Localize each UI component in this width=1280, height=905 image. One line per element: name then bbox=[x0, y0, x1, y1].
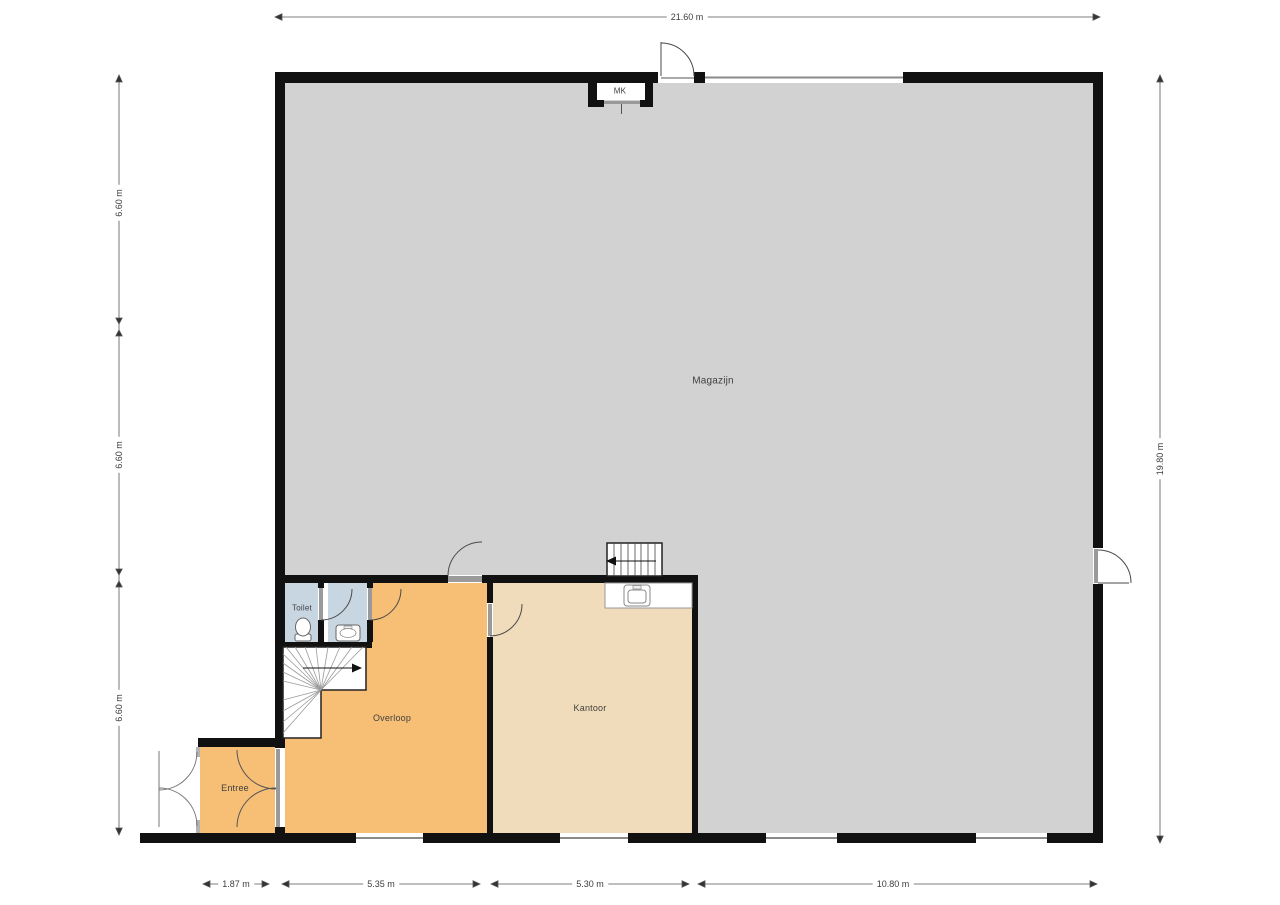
stairs-winder bbox=[283, 647, 366, 738]
dimension-label-left-3: 6.60 m bbox=[114, 690, 124, 726]
wash-basin-icon bbox=[336, 625, 360, 641]
dimension-label-bottom-3: 5.30 m bbox=[572, 879, 608, 889]
dimension-label-top: 21.60 m bbox=[667, 12, 708, 22]
dimension-label-left-1: 6.60 m bbox=[114, 185, 124, 221]
kitchenette-counter bbox=[605, 583, 692, 608]
room-label-entree: Entree bbox=[221, 783, 249, 793]
mk-hatch bbox=[604, 103, 640, 115]
floor-plan: MK Magazijn Toilet Overloop Kantoor Entr… bbox=[0, 0, 1280, 905]
room-label-overloop: Overloop bbox=[373, 713, 411, 723]
dimension-label-bottom-4: 10.80 m bbox=[873, 879, 914, 889]
room-label-magazijn: Magazijn bbox=[692, 376, 734, 387]
door-right-exterior bbox=[1098, 550, 1131, 583]
dimension-label-bottom-2: 5.35 m bbox=[363, 879, 399, 889]
door-arc-kantoor bbox=[490, 604, 522, 636]
room-label-mk: MK bbox=[614, 87, 626, 96]
toilet-bowl-icon bbox=[295, 618, 311, 641]
door-arc-washroom bbox=[370, 589, 401, 620]
dimension-label-left-2: 6.60 m bbox=[114, 437, 124, 473]
door-arc-overloop-magazijn bbox=[448, 542, 482, 576]
dimension-label-bottom-1: 1.87 m bbox=[218, 879, 254, 889]
room-label-kantoor: Kantoor bbox=[574, 703, 607, 713]
double-door-entree-exterior bbox=[159, 751, 197, 827]
stairs-straight bbox=[606, 543, 662, 576]
door-top-exterior bbox=[661, 42, 694, 78]
dimension-lines bbox=[116, 14, 1163, 887]
window-glazing-lines bbox=[356, 78, 1047, 839]
door-arc-toilet bbox=[321, 589, 352, 620]
dimension-label-right: 19.80 m bbox=[1155, 439, 1165, 480]
room-label-toilet: Toilet bbox=[292, 604, 312, 613]
plan-detail-layer bbox=[0, 0, 1280, 905]
